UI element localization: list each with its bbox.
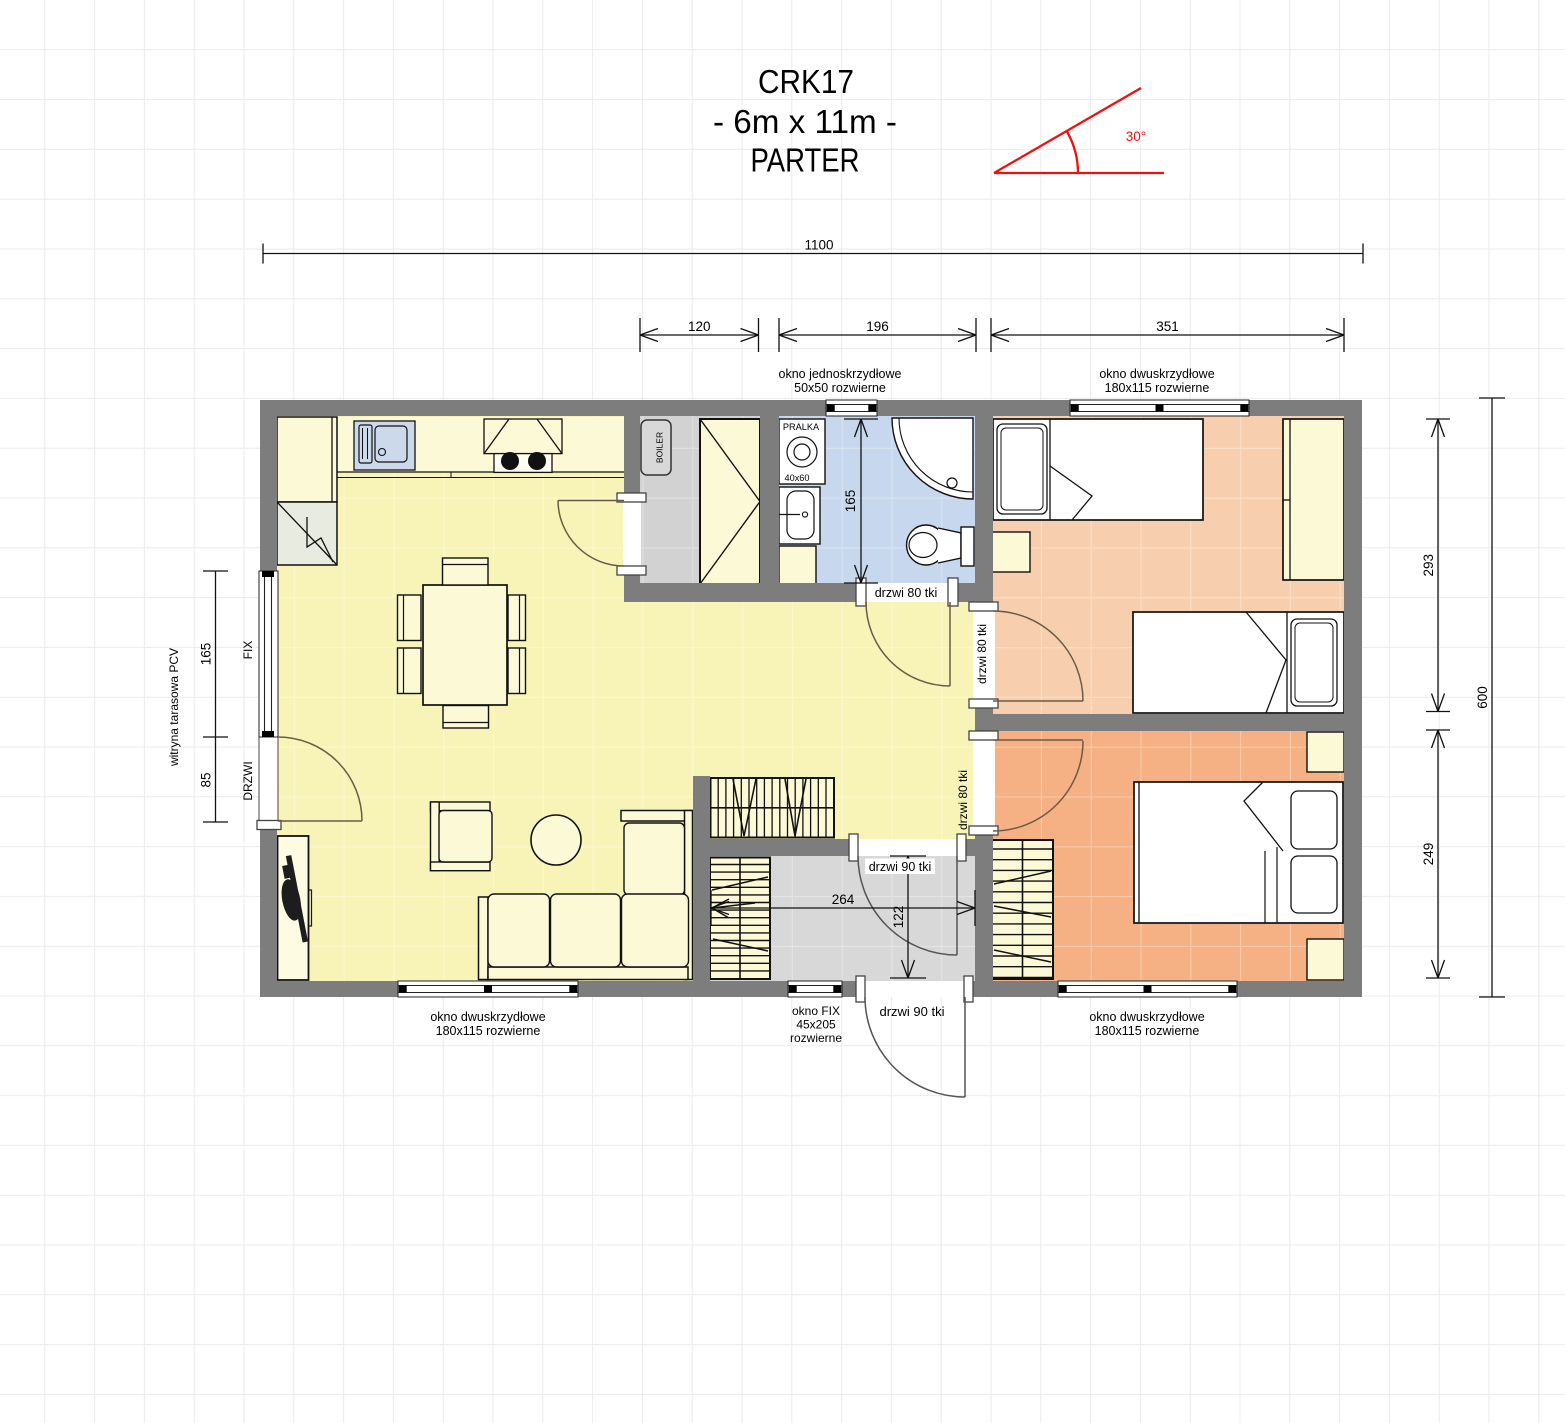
svg-text:165: 165: [843, 490, 858, 513]
svg-text:drzwi 80 tki: drzwi 80 tki: [956, 770, 970, 830]
svg-text:120: 120: [688, 319, 711, 334]
svg-text:85: 85: [199, 772, 214, 787]
svg-text:122: 122: [891, 906, 906, 929]
svg-text:45x205: 45x205: [796, 1018, 836, 1032]
svg-text:FIX: FIX: [241, 641, 255, 660]
svg-text:264: 264: [832, 892, 855, 907]
svg-text:180x115 rozwierne: 180x115 rozwierne: [436, 1024, 541, 1038]
svg-text:BOILER: BOILER: [654, 432, 664, 463]
svg-text:1100: 1100: [804, 238, 833, 253]
svg-text:PRALKA: PRALKA: [783, 422, 820, 432]
svg-text:PARTER: PARTER: [751, 142, 860, 179]
svg-text:600: 600: [1475, 686, 1490, 709]
svg-text:okno FIX: okno FIX: [792, 1004, 840, 1018]
svg-text:drzwi 80 tki: drzwi 80 tki: [875, 586, 938, 600]
svg-text:50x50 rozwierne: 50x50 rozwierne: [794, 381, 886, 395]
svg-text:351: 351: [1156, 319, 1179, 334]
svg-text:witryna tarasowa PCV: witryna tarasowa PCV: [167, 648, 181, 767]
svg-text:293: 293: [1421, 554, 1436, 577]
svg-text:rozwierne: rozwierne: [790, 1031, 842, 1045]
svg-text:okno dwuskrzydłowe: okno dwuskrzydłowe: [430, 1010, 545, 1024]
svg-text:drzwi 90 tki: drzwi 90 tki: [879, 1004, 944, 1019]
svg-text:165: 165: [199, 643, 214, 666]
svg-text:okno dwuskrzydłowe: okno dwuskrzydłowe: [1099, 367, 1214, 381]
svg-text:CRK17: CRK17: [758, 63, 854, 100]
svg-text:okno jednoskrzydłowe: okno jednoskrzydłowe: [779, 367, 902, 381]
svg-text:40x60: 40x60: [784, 473, 809, 483]
svg-text:drzwi 80 tki: drzwi 80 tki: [975, 624, 989, 684]
svg-text:- 6m x 11m -: - 6m x 11m -: [713, 103, 897, 140]
svg-text:drzwi 90 tki: drzwi 90 tki: [869, 860, 932, 874]
svg-text:196: 196: [866, 319, 889, 334]
svg-text:DRZWI: DRZWI: [241, 761, 255, 800]
svg-text:249: 249: [1421, 843, 1436, 866]
svg-text:180x115 rozwierne: 180x115 rozwierne: [1105, 381, 1210, 395]
svg-text:okno dwuskrzydłowe: okno dwuskrzydłowe: [1089, 1010, 1204, 1024]
svg-text:180x115 rozwierne: 180x115 rozwierne: [1095, 1024, 1200, 1038]
svg-text:30°: 30°: [1126, 129, 1146, 144]
